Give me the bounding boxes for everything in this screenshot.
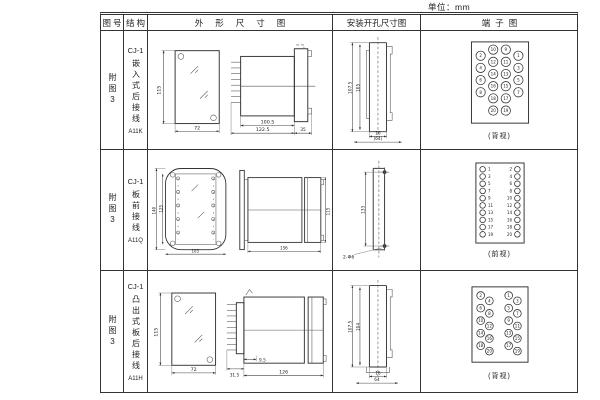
dim-label-side-d2-3: 9.5 bbox=[259, 357, 266, 363]
type-code-1: A11K bbox=[128, 129, 142, 135]
svg-text:12: 12 bbox=[506, 203, 512, 208]
header-figure: 图号 bbox=[101, 15, 124, 31]
header-terminal: 端子图 bbox=[421, 15, 578, 31]
svg-text:5: 5 bbox=[487, 181, 490, 186]
dim-label-front-height-3: 115 bbox=[154, 327, 160, 336]
svg-text:15: 15 bbox=[514, 335, 520, 340]
svg-text:2: 2 bbox=[479, 53, 482, 58]
dim-label-front-width-2: 105 bbox=[191, 248, 199, 253]
svg-text:11: 11 bbox=[487, 203, 493, 208]
svg-text:1: 1 bbox=[507, 293, 510, 298]
header-outline: 外形尺寸图 bbox=[148, 15, 333, 31]
svg-text:9: 9 bbox=[507, 318, 510, 323]
mounting-drawing-3: 107.5 104 16 64 bbox=[341, 278, 413, 385]
mounting-cell-2: 133 2-Φ6 bbox=[333, 150, 421, 271]
svg-text:13: 13 bbox=[506, 330, 512, 335]
svg-text:10: 10 bbox=[478, 318, 484, 323]
outline-side-view-3: 9.5 31.5 126 bbox=[225, 285, 331, 379]
svg-text:17: 17 bbox=[506, 343, 512, 348]
header-structure: 结构 bbox=[124, 15, 148, 31]
spec-table: 图号 结构 外形尺寸图 安装开孔尺寸图 端子图 附图3 CJ-1 嵌入式后接线 … bbox=[100, 12, 578, 393]
svg-text:11: 11 bbox=[514, 323, 520, 328]
svg-text:15: 15 bbox=[487, 217, 493, 222]
svg-text:8: 8 bbox=[479, 90, 482, 95]
svg-text:10: 10 bbox=[490, 47, 496, 52]
svg-text:17: 17 bbox=[487, 225, 493, 230]
svg-text:14: 14 bbox=[506, 210, 512, 215]
terminal-diagram-2: 1357911131517192468101214161820 bbox=[473, 161, 527, 246]
svg-text:8: 8 bbox=[488, 310, 491, 315]
svg-text:1: 1 bbox=[517, 53, 520, 58]
outline-side-view-2: 156 115 bbox=[236, 165, 330, 255]
terminal-diagram-3: 2468101214161820135791113151719 bbox=[468, 283, 532, 368]
svg-text:8: 8 bbox=[509, 188, 512, 193]
dim-label-side-h-2: 115 bbox=[325, 207, 330, 215]
svg-text:16: 16 bbox=[506, 217, 512, 222]
svg-text:6: 6 bbox=[509, 181, 512, 186]
svg-text:6: 6 bbox=[479, 78, 482, 83]
hole-spec-label-2: 2-Φ6 bbox=[342, 254, 353, 260]
svg-text:2: 2 bbox=[479, 293, 482, 298]
svg-text:3: 3 bbox=[517, 65, 520, 70]
dim-label-side-d1-2: 156 bbox=[280, 246, 288, 251]
outline-front-view-2: 140 125 105 bbox=[151, 164, 234, 256]
outline-cell-1: 115 72 bbox=[148, 31, 333, 150]
svg-text:13: 13 bbox=[503, 71, 509, 76]
outline-cell-2: 140 125 105 156 bbox=[148, 150, 333, 271]
terminal-cell-3: 2468101214161820135791113151719 (背视) bbox=[421, 271, 578, 392]
dim-label-mount-vinner-1: 105 bbox=[355, 83, 361, 91]
structure-label-2: 板前接线 bbox=[132, 190, 140, 234]
svg-text:13: 13 bbox=[487, 210, 493, 215]
terminal-caption-1: (背视) bbox=[488, 131, 511, 141]
structure-cell-1: CJ-1 嵌入式后接线 A11K bbox=[124, 31, 148, 150]
type-code-2: A11Q bbox=[128, 238, 143, 244]
header-structure-label: 结构 bbox=[126, 17, 147, 29]
outline-front-view-1: 115 72 bbox=[152, 43, 227, 137]
svg-text:6: 6 bbox=[479, 305, 482, 310]
mounting-cell-3: 107.5 104 16 64 bbox=[333, 271, 421, 392]
svg-text:9: 9 bbox=[504, 47, 507, 52]
figure-number-2: 附图3 bbox=[108, 193, 116, 227]
svg-text:14: 14 bbox=[478, 330, 484, 335]
header-terminal-label: 端子图 bbox=[482, 17, 523, 29]
svg-text:4: 4 bbox=[488, 298, 491, 303]
svg-text:3: 3 bbox=[487, 174, 490, 179]
terminal-cell-1: 2468101214161820911131517191357 (背视) bbox=[421, 31, 578, 150]
svg-text:2: 2 bbox=[509, 167, 512, 172]
structure-cell-3: CJ-1 凸出式板后接线 A11H bbox=[124, 271, 148, 392]
header-mounting: 安装开孔尺寸图 bbox=[333, 15, 421, 31]
figure-number-1: 附图3 bbox=[108, 73, 116, 107]
svg-text:7: 7 bbox=[517, 90, 520, 95]
dim-label-mount-vinner-3: 104 bbox=[355, 323, 361, 331]
dim-label-front-height-2: 140 bbox=[151, 206, 156, 214]
svg-text:18: 18 bbox=[478, 343, 484, 348]
svg-text:5: 5 bbox=[517, 78, 520, 83]
dim-label-front-width-3: 72 bbox=[191, 366, 197, 372]
structure-cell-2: CJ-1 板前接线 A11Q bbox=[124, 150, 148, 271]
svg-text:10: 10 bbox=[506, 196, 512, 201]
dim-label-mount-houter-1: (64) bbox=[373, 136, 382, 142]
dim-label-front-width-1: 72 bbox=[194, 125, 200, 131]
mounting-cell-1: 107.5 105 16 (64) bbox=[333, 31, 421, 150]
svg-text:4: 4 bbox=[509, 174, 512, 179]
svg-text:20: 20 bbox=[506, 232, 512, 237]
page: 单位：mm 图号 结构 外形尺寸图 安装开孔尺寸图 端子图 附图3 CJ-1 嵌… bbox=[0, 0, 600, 400]
svg-text:1: 1 bbox=[487, 167, 490, 172]
figure-cell-2: 附图3 bbox=[101, 150, 124, 271]
svg-text:16: 16 bbox=[486, 335, 492, 340]
outline-side-view-1: 100.5 122.5 35 bbox=[229, 43, 329, 137]
svg-text:14: 14 bbox=[490, 71, 496, 76]
model-label-3: CJ-1 bbox=[128, 282, 144, 291]
svg-text:5: 5 bbox=[507, 305, 510, 310]
dim-label-mount-vouter-1: 107.5 bbox=[347, 81, 353, 93]
outline-front-view-3: 115 72 bbox=[149, 285, 223, 379]
svg-text:12: 12 bbox=[490, 59, 496, 64]
svg-text:20: 20 bbox=[486, 348, 492, 353]
terminal-cell-2: 1357911131517192468101214161820 (前视) bbox=[421, 150, 578, 271]
structure-label-3: 凸出式板后接线 bbox=[132, 295, 140, 372]
svg-text:19: 19 bbox=[503, 108, 509, 113]
mounting-drawing-1: 107.5 105 16 (64) bbox=[341, 37, 413, 144]
dim-label-front-height-1: 115 bbox=[156, 86, 162, 95]
header-mounting-label: 安装开孔尺寸图 bbox=[347, 17, 407, 29]
model-label-2: CJ-1 bbox=[128, 177, 144, 186]
figure-cell-1: 附图3 bbox=[101, 31, 124, 150]
figure-cell-3: 附图3 bbox=[101, 271, 124, 392]
svg-text:11: 11 bbox=[503, 59, 509, 64]
svg-text:12: 12 bbox=[486, 323, 492, 328]
dim-label-side-d3-3: 126 bbox=[279, 369, 288, 375]
terminal-caption-3: (背视) bbox=[488, 371, 511, 381]
svg-text:18: 18 bbox=[490, 96, 496, 101]
svg-text:7: 7 bbox=[487, 188, 490, 193]
svg-text:20: 20 bbox=[490, 108, 496, 113]
dim-label-mount-vouter-3: 107.5 bbox=[347, 320, 353, 332]
header-figure-label: 图号 bbox=[102, 17, 123, 29]
svg-text:19: 19 bbox=[487, 232, 493, 237]
outline-cell-3: 115 72 bbox=[148, 271, 333, 392]
svg-text:4: 4 bbox=[479, 65, 482, 70]
svg-text:18: 18 bbox=[506, 225, 512, 230]
dim-label-side-d1-3: 31.5 bbox=[230, 372, 240, 378]
dim-label-mount-houter-3: 64 bbox=[374, 377, 380, 383]
dim-label-mount-hinner-1: 16 bbox=[375, 130, 381, 136]
dim-label-front-h2-2: 125 bbox=[158, 205, 163, 213]
dim-label-mount-hinner-3: 16 bbox=[375, 371, 381, 377]
type-code-3: A11H bbox=[128, 376, 143, 382]
dim-label-side-d1-1: 100.5 bbox=[260, 120, 274, 126]
svg-text:7: 7 bbox=[516, 310, 519, 315]
svg-text:15: 15 bbox=[503, 84, 509, 89]
model-label-1: CJ-1 bbox=[128, 46, 144, 55]
svg-text:9: 9 bbox=[487, 196, 490, 201]
terminal-diagram-1: 2468101214161820911131517191357 bbox=[468, 39, 532, 128]
svg-text:16: 16 bbox=[490, 84, 496, 89]
terminal-caption-2: (前视) bbox=[488, 249, 511, 259]
svg-text:17: 17 bbox=[503, 96, 509, 101]
structure-label-1: 嵌入式后接线 bbox=[132, 59, 140, 125]
figure-number-3: 附图3 bbox=[108, 315, 116, 349]
mounting-drawing-2: 133 2-Φ6 bbox=[341, 157, 413, 264]
svg-text:19: 19 bbox=[514, 348, 520, 353]
dim-label-mount-vdim-2: 133 bbox=[360, 205, 366, 213]
header-outline-label: 外形尺寸图 bbox=[195, 17, 298, 29]
dim-label-side-d3-1: 35 bbox=[300, 127, 306, 133]
dim-label-side-d2-1: 122.5 bbox=[255, 127, 269, 133]
svg-text:3: 3 bbox=[516, 298, 519, 303]
